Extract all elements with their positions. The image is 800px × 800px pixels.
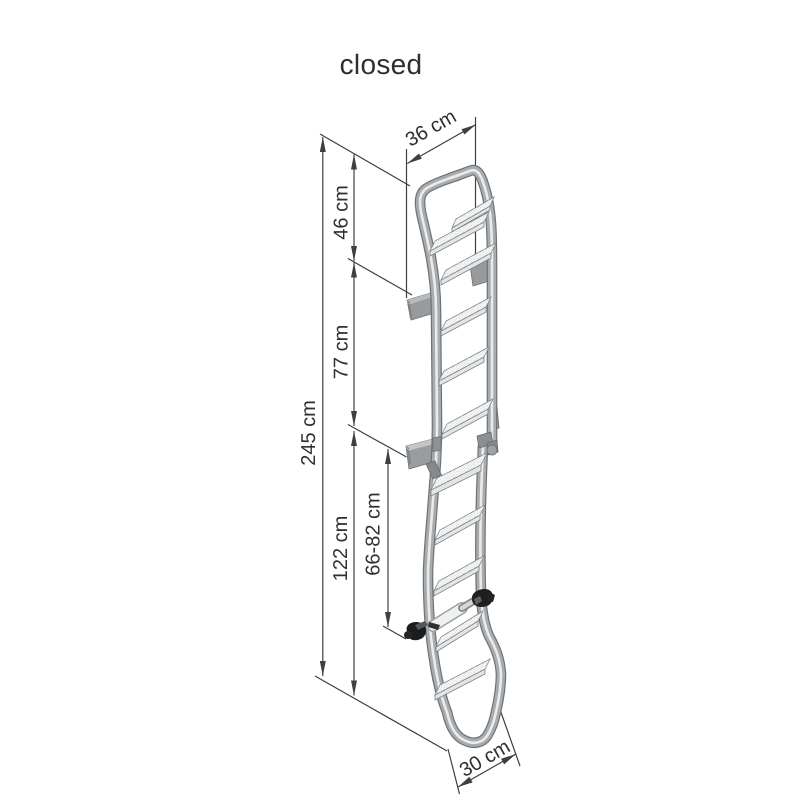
svg-text:36 cm: 36 cm xyxy=(402,105,460,151)
svg-text:closed: closed xyxy=(340,49,423,80)
svg-text:122 cm: 122 cm xyxy=(330,516,352,582)
svg-text:66-82 cm: 66-82 cm xyxy=(363,492,385,575)
svg-text:46 cm: 46 cm xyxy=(330,185,352,239)
svg-text:245 cm: 245 cm xyxy=(298,400,320,466)
svg-text:77 cm: 77 cm xyxy=(330,325,352,379)
